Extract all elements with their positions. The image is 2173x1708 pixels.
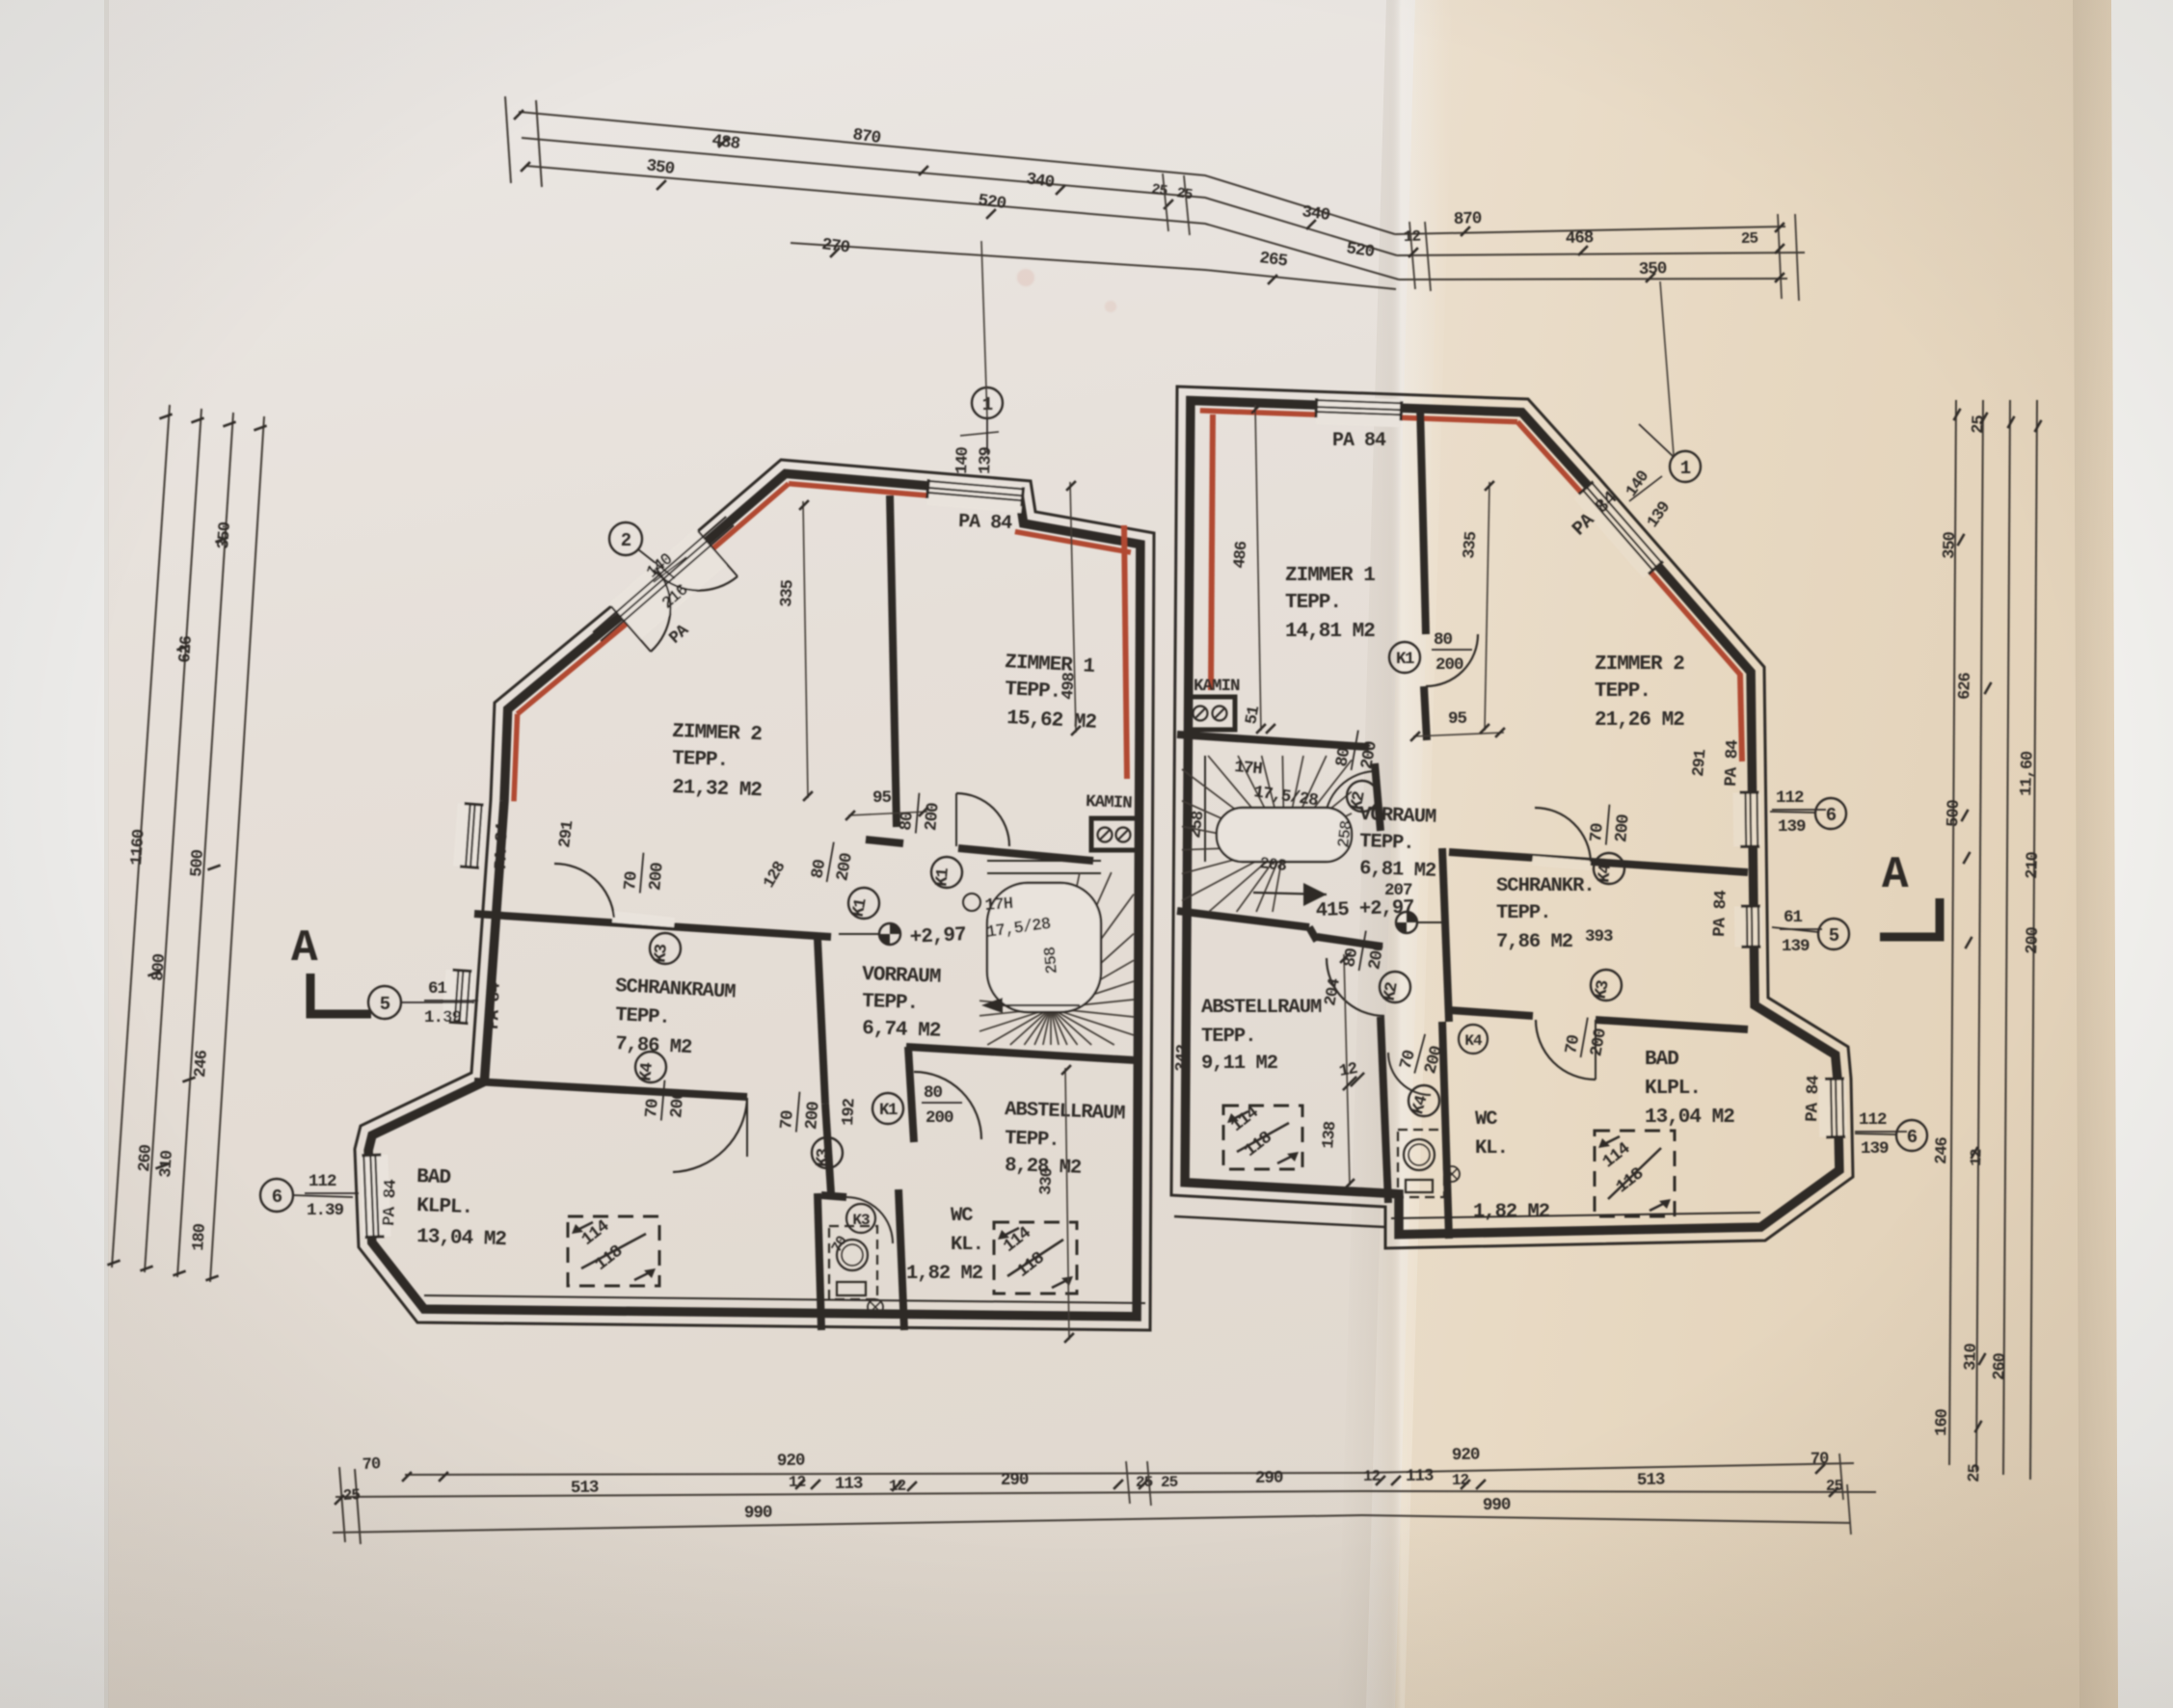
svg-text:TEPP.: TEPP. — [1201, 1026, 1256, 1048]
svg-text:+2,97: +2,97 — [909, 924, 967, 949]
svg-text:112: 112 — [1776, 788, 1804, 808]
svg-text:350: 350 — [645, 156, 676, 179]
svg-text:21,32 M2: 21,32 M2 — [672, 777, 763, 802]
svg-text:25: 25 — [1970, 414, 1989, 434]
svg-text:KAMIN: KAMIN — [1086, 792, 1133, 814]
svg-text:513: 513 — [1637, 1470, 1665, 1490]
svg-text:920: 920 — [1452, 1445, 1480, 1465]
svg-text:PA 84: PA 84 — [1803, 1076, 1824, 1123]
svg-text:K1: K1 — [1396, 650, 1414, 669]
svg-text:990: 990 — [1483, 1495, 1511, 1515]
svg-text:1.39: 1.39 — [307, 1201, 344, 1220]
svg-text:ZIMMER 2: ZIMMER 2 — [672, 721, 763, 746]
svg-text:K3: K3 — [813, 1148, 834, 1168]
svg-text:139: 139 — [1782, 937, 1810, 956]
svg-text:350: 350 — [1941, 531, 1960, 559]
svg-text:520: 520 — [1345, 239, 1376, 262]
svg-text:200: 200 — [926, 1108, 953, 1128]
svg-text:340: 340 — [1301, 202, 1331, 226]
svg-text:310: 310 — [1962, 1343, 1981, 1371]
svg-text:17H: 17H — [984, 894, 1013, 916]
svg-text:13,04 M2: 13,04 M2 — [1645, 1107, 1734, 1129]
svg-text:7,86 M2: 7,86 M2 — [615, 1033, 693, 1059]
svg-text:KAMIN: KAMIN — [1194, 677, 1240, 696]
svg-text:13,04 M2: 13,04 M2 — [416, 1226, 507, 1251]
svg-text:95: 95 — [872, 788, 892, 808]
svg-text:500: 500 — [188, 849, 208, 878]
svg-text:80: 80 — [897, 811, 918, 831]
svg-text:513: 513 — [571, 1478, 599, 1498]
svg-text:12: 12 — [1968, 1149, 1986, 1166]
svg-text:200: 200 — [1612, 814, 1633, 843]
svg-text:330: 330 — [1037, 1167, 1057, 1195]
svg-text:WC: WC — [1475, 1108, 1497, 1131]
svg-text:112: 112 — [1859, 1110, 1887, 1130]
svg-text:258: 258 — [1335, 819, 1356, 849]
svg-text:70: 70 — [621, 870, 642, 891]
svg-text:5: 5 — [1829, 925, 1839, 947]
svg-text:7,86 M2: 7,86 M2 — [1496, 931, 1573, 953]
svg-text:15,62 M2: 15,62 M2 — [1006, 707, 1097, 734]
svg-text:9,11 M2: 9,11 M2 — [1201, 1053, 1278, 1075]
svg-text:80: 80 — [1434, 630, 1453, 650]
svg-text:192: 192 — [840, 1098, 859, 1126]
svg-text:WC: WC — [951, 1205, 973, 1227]
svg-text:200: 200 — [802, 1101, 823, 1131]
svg-text:291: 291 — [556, 819, 577, 849]
svg-text:210: 210 — [2024, 851, 2043, 879]
svg-text:ZIMMER 2: ZIMMER 2 — [1595, 654, 1684, 676]
svg-text:PA 84: PA 84 — [958, 511, 1013, 535]
svg-text:PA 84: PA 84 — [1332, 430, 1386, 452]
svg-text:6: 6 — [1826, 805, 1837, 826]
svg-text:TEPP.: TEPP. — [1359, 831, 1414, 855]
svg-text:486: 486 — [1231, 541, 1251, 570]
svg-text:270: 270 — [820, 235, 850, 257]
svg-text:K4: K4 — [1595, 864, 1616, 884]
svg-text:A: A — [1882, 850, 1909, 900]
svg-text:258: 258 — [1042, 946, 1062, 974]
svg-text:207: 207 — [1384, 881, 1412, 900]
svg-text:258: 258 — [1187, 810, 1208, 840]
svg-text:KLPL.: KLPL. — [1645, 1078, 1701, 1100]
svg-text:KL.: KL. — [951, 1234, 983, 1256]
svg-text:KL.: KL. — [1475, 1137, 1508, 1160]
svg-text:PA 84: PA 84 — [1722, 740, 1743, 787]
svg-text:1,82 M2: 1,82 M2 — [906, 1263, 983, 1285]
svg-text:200: 200 — [922, 802, 943, 832]
svg-text:25: 25 — [1966, 1463, 1985, 1482]
svg-text:260: 260 — [1991, 1352, 2010, 1380]
svg-text:VORRAUM: VORRAUM — [862, 964, 941, 989]
svg-text:113: 113 — [1406, 1466, 1434, 1486]
svg-text:TEPP.: TEPP. — [615, 1004, 671, 1029]
svg-text:25: 25 — [1161, 1474, 1178, 1491]
svg-text:80: 80 — [924, 1083, 943, 1103]
svg-text:70: 70 — [362, 1455, 381, 1475]
svg-text:112: 112 — [309, 1172, 336, 1191]
svg-text:TEPP.: TEPP. — [672, 748, 729, 772]
svg-text:393: 393 — [1585, 927, 1613, 947]
svg-text:K4: K4 — [636, 1062, 657, 1082]
svg-text:KLPL.: KLPL. — [416, 1195, 473, 1219]
svg-text:260: 260 — [136, 1144, 156, 1173]
svg-text:61: 61 — [1784, 908, 1803, 927]
svg-text:17H: 17H — [1233, 758, 1263, 779]
svg-text:180: 180 — [190, 1223, 210, 1252]
svg-text:208: 208 — [1258, 855, 1287, 876]
svg-text:21,26 M2: 21,26 M2 — [1595, 709, 1684, 732]
svg-text:2: 2 — [621, 530, 631, 551]
svg-text:468: 468 — [1566, 228, 1595, 249]
svg-text:PA 84: PA 84 — [492, 823, 513, 870]
svg-text:290: 290 — [1255, 1468, 1283, 1488]
svg-text:246: 246 — [192, 1050, 212, 1079]
svg-text:290: 290 — [1001, 1470, 1029, 1490]
svg-text:TEPP.: TEPP. — [1005, 1128, 1060, 1152]
svg-text:TEPP.: TEPP. — [1595, 681, 1650, 703]
svg-text:870: 870 — [1454, 209, 1483, 229]
svg-text:138: 138 — [1320, 1121, 1340, 1150]
svg-text:TEPP.: TEPP. — [862, 991, 919, 1015]
svg-text:200: 200 — [2024, 926, 2043, 954]
svg-text:14,81 M2: 14,81 M2 — [1285, 621, 1375, 643]
svg-text:335: 335 — [1461, 531, 1481, 560]
svg-text:160: 160 — [1933, 1408, 1952, 1436]
svg-text:BAD: BAD — [1645, 1049, 1678, 1071]
svg-text:25: 25 — [342, 1486, 361, 1505]
svg-text:200: 200 — [646, 862, 667, 892]
svg-text:K3: K3 — [852, 1212, 870, 1229]
svg-text:5: 5 — [380, 994, 390, 1015]
svg-text:265: 265 — [1258, 249, 1288, 271]
svg-text:200: 200 — [1435, 655, 1463, 675]
svg-text:488: 488 — [711, 131, 741, 154]
svg-text:626: 626 — [176, 635, 197, 664]
svg-text:BAD: BAD — [416, 1166, 451, 1189]
svg-text:PA 84: PA 84 — [1710, 891, 1731, 938]
svg-text:350: 350 — [215, 521, 235, 550]
svg-text:ZIMMER 1: ZIMMER 1 — [1285, 565, 1375, 587]
svg-text:415 +2,97: 415 +2,97 — [1315, 896, 1413, 922]
svg-text:1,82 M2: 1,82 M2 — [1473, 1201, 1550, 1223]
svg-text:990: 990 — [744, 1503, 772, 1523]
svg-text:340: 340 — [1025, 170, 1056, 193]
svg-text:ABSTELLRAUM: ABSTELLRAUM — [1201, 997, 1322, 1019]
svg-text:800: 800 — [149, 953, 170, 982]
svg-text:PA 84: PA 84 — [484, 983, 505, 1030]
svg-text:12: 12 — [1452, 1472, 1469, 1489]
svg-text:342: 342 — [1173, 1044, 1193, 1072]
svg-text:K1: K1 — [879, 1101, 898, 1120]
svg-text:500: 500 — [1945, 799, 1964, 827]
svg-text:K3: K3 — [651, 944, 672, 964]
svg-text:70: 70 — [642, 1098, 663, 1118]
svg-text:TEPP.: TEPP. — [1496, 902, 1551, 924]
svg-text:870: 870 — [851, 125, 882, 148]
svg-text:498: 498 — [1060, 672, 1079, 700]
svg-text:1: 1 — [1680, 458, 1691, 479]
svg-text:626: 626 — [1956, 672, 1975, 700]
svg-text:K4: K4 — [1464, 1032, 1483, 1050]
svg-text:TEPP.: TEPP. — [1285, 592, 1341, 614]
svg-text:K1: K1 — [932, 867, 953, 888]
svg-text:70: 70 — [1587, 822, 1608, 842]
svg-text:200: 200 — [667, 1089, 688, 1119]
svg-text:6: 6 — [1907, 1127, 1918, 1148]
svg-text:61: 61 — [428, 979, 447, 999]
svg-text:6: 6 — [272, 1187, 282, 1208]
svg-text:139: 139 — [1861, 1139, 1889, 1159]
svg-text:140: 140 — [953, 446, 973, 474]
svg-text:70: 70 — [777, 1109, 798, 1130]
svg-text:335: 335 — [778, 579, 797, 607]
svg-text:95: 95 — [1448, 709, 1467, 729]
svg-text:25: 25 — [1741, 229, 1758, 248]
svg-text:139: 139 — [977, 446, 996, 474]
svg-text:139: 139 — [1778, 817, 1806, 837]
svg-text:SCHRANKR.: SCHRANKR. — [1496, 875, 1595, 897]
svg-text:11,60: 11,60 — [2018, 751, 2038, 796]
svg-text:ABSTELLRAUM: ABSTELLRAUM — [1005, 1099, 1126, 1125]
svg-text:6,74 M2: 6,74 M2 — [862, 1018, 941, 1043]
svg-text:PA 84: PA 84 — [380, 1180, 401, 1227]
svg-text:A: A — [291, 923, 318, 974]
svg-text:113: 113 — [835, 1474, 863, 1494]
svg-text:70: 70 — [1811, 1451, 1830, 1469]
svg-text:520: 520 — [977, 191, 1007, 214]
svg-text:920: 920 — [777, 1451, 805, 1471]
svg-text:291: 291 — [1690, 749, 1710, 778]
svg-text:246: 246 — [1933, 1136, 1952, 1164]
svg-text:1160: 1160 — [128, 829, 149, 867]
svg-text:ZIMMER 1: ZIMMER 1 — [1005, 652, 1095, 679]
svg-text:TEPP.: TEPP. — [1005, 679, 1061, 704]
svg-text:6,81 M2: 6,81 M2 — [1359, 858, 1437, 883]
svg-text:1.39: 1.39 — [424, 1008, 462, 1027]
svg-text:310: 310 — [157, 1150, 177, 1179]
